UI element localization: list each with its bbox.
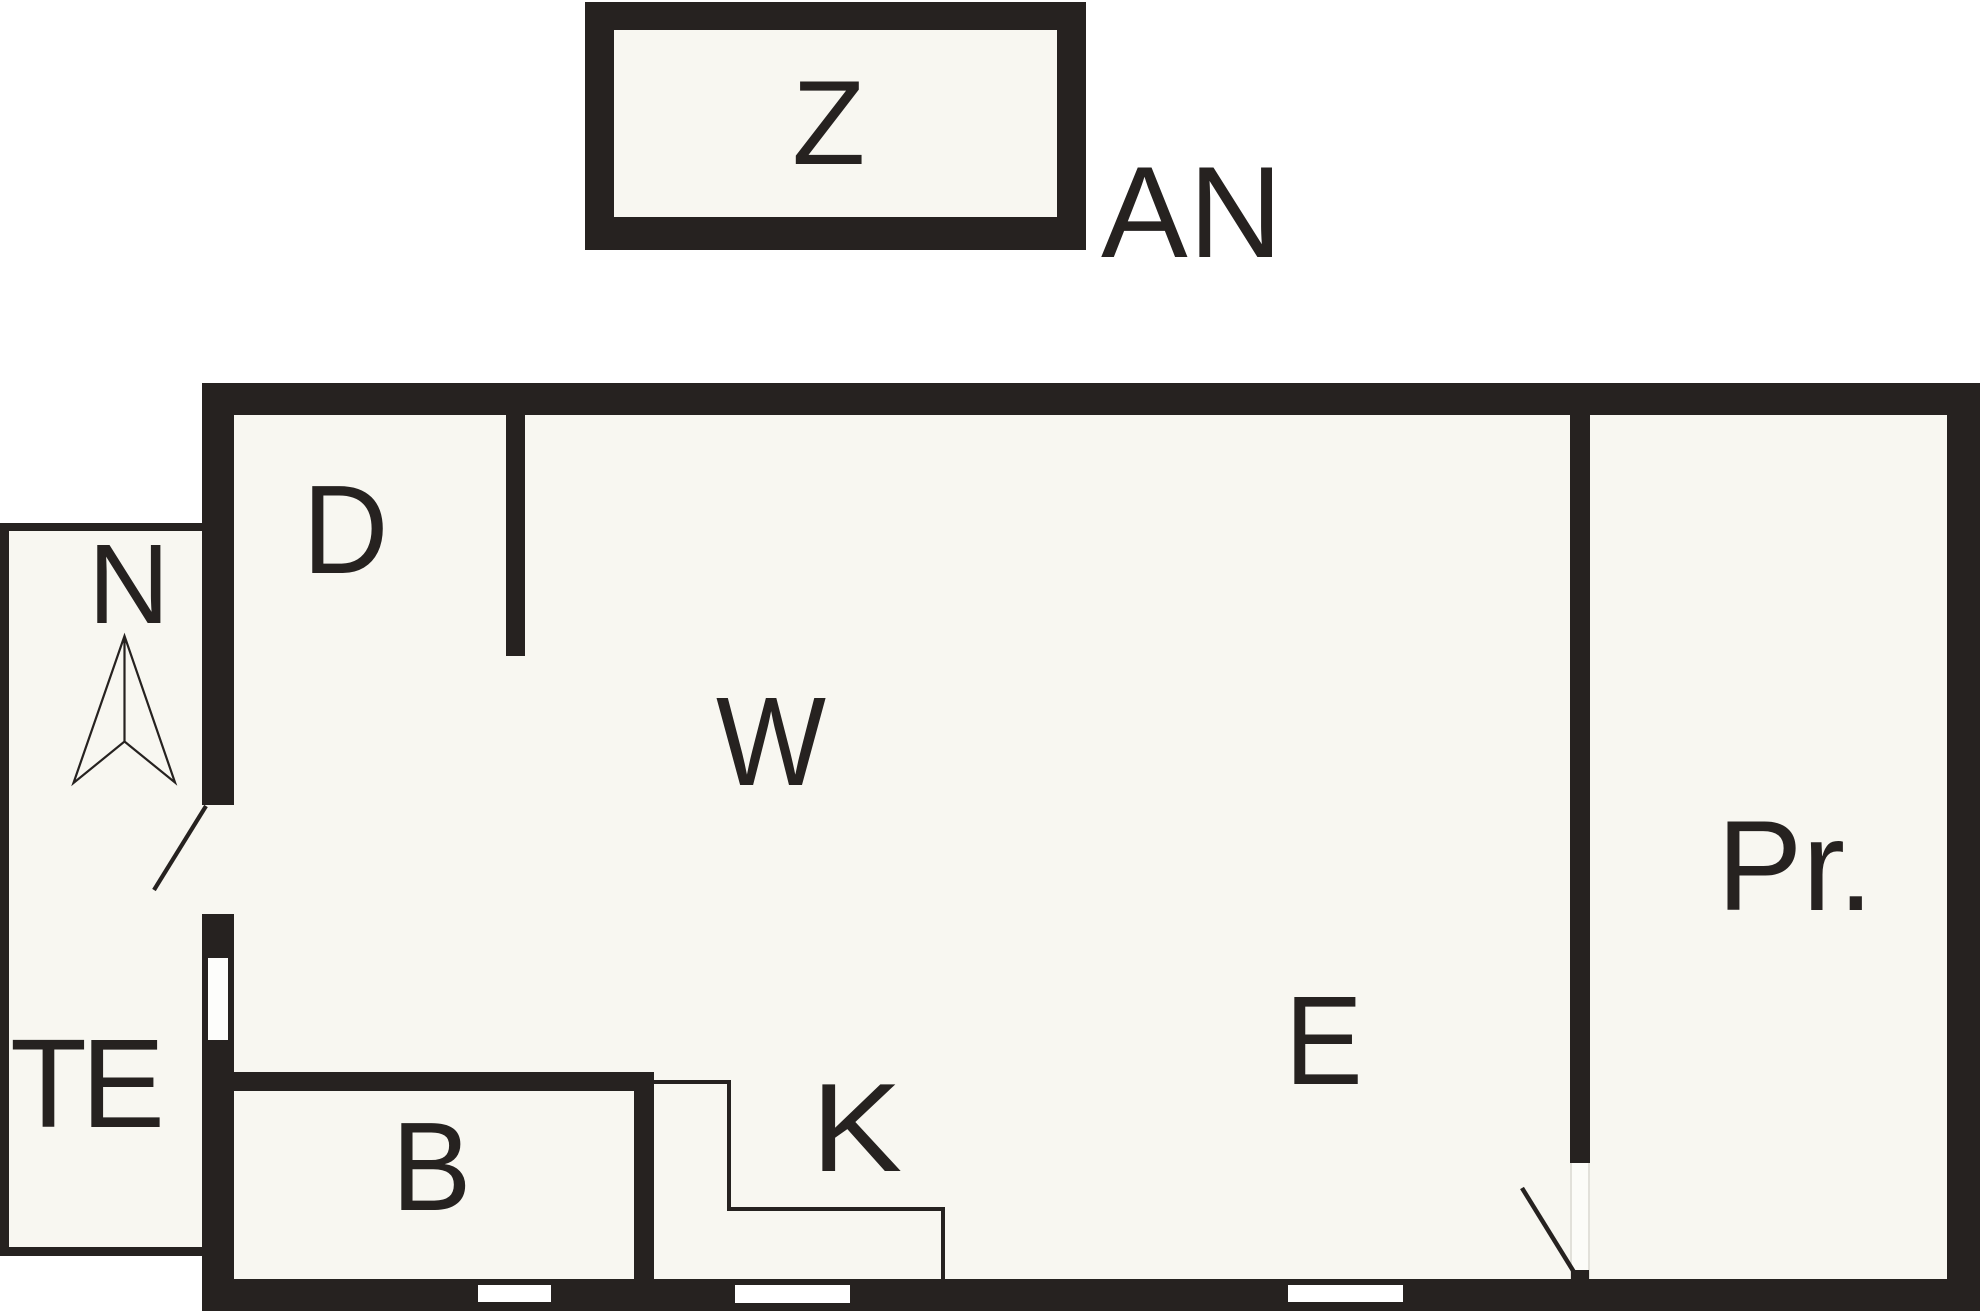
svg-text:AN: AN <box>1101 139 1284 285</box>
svg-text:Pr.: Pr. <box>1717 795 1874 938</box>
svg-text:B: B <box>392 1096 472 1237</box>
svg-text:K: K <box>811 1057 902 1198</box>
svg-text:TE: TE <box>10 1013 160 1154</box>
svg-text:W: W <box>716 671 826 812</box>
svg-text:D: D <box>303 459 389 600</box>
svg-text:Z: Z <box>792 56 865 190</box>
svg-text:N: N <box>88 521 170 647</box>
svg-text:E: E <box>1285 970 1363 1111</box>
